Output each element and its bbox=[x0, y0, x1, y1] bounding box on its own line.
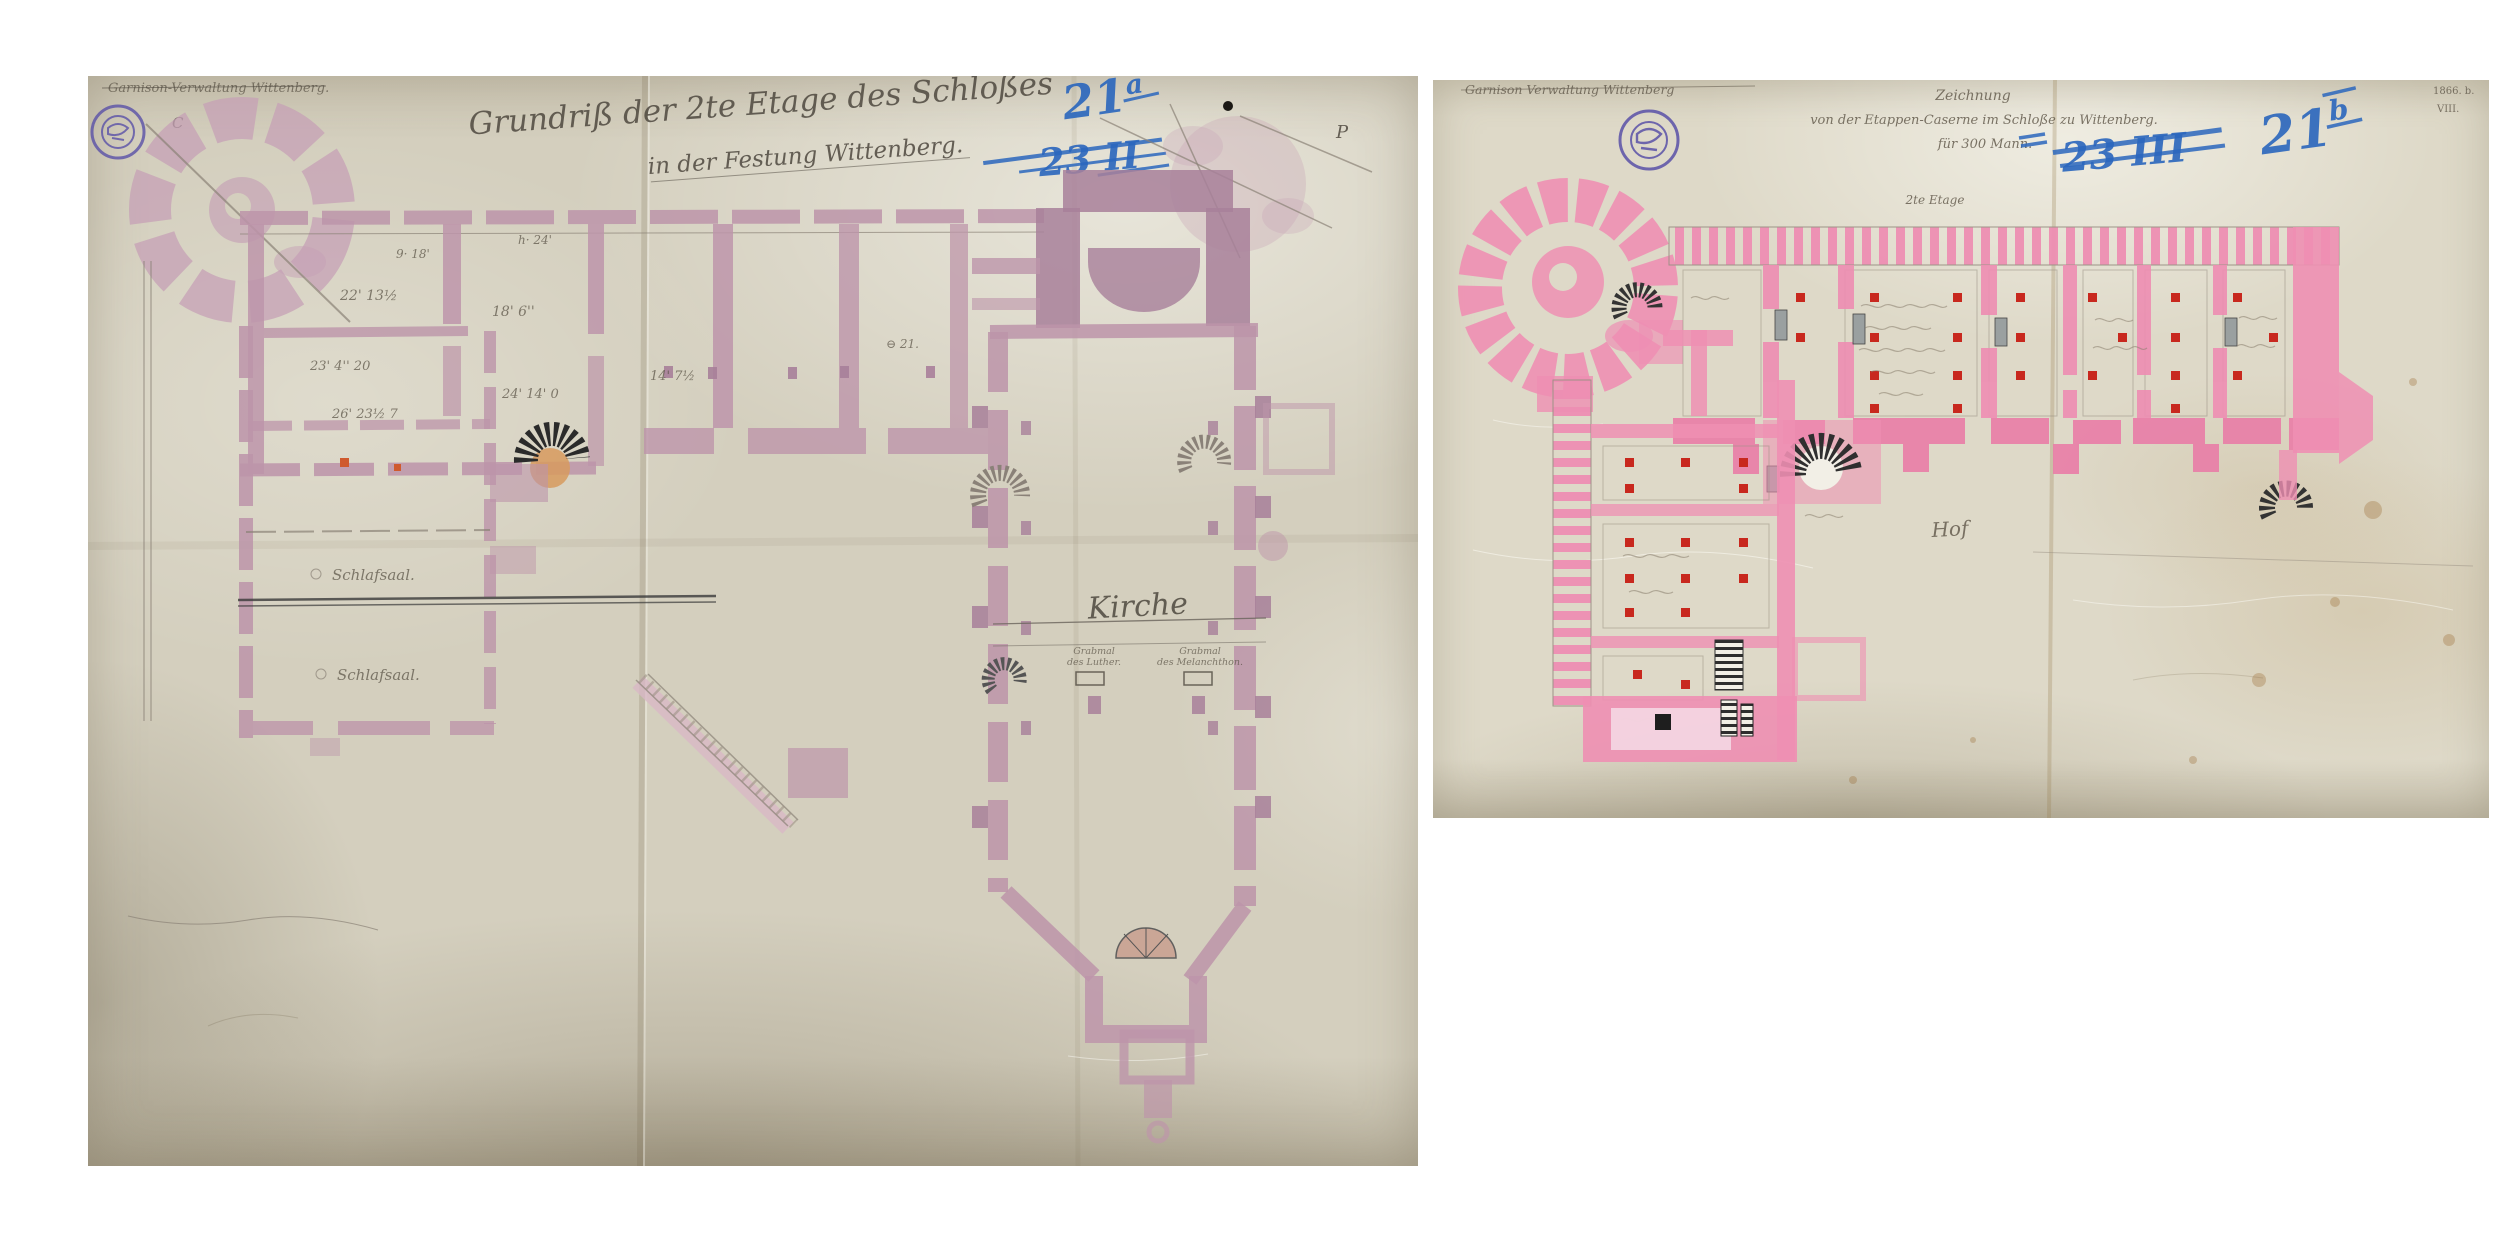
grabmal-luther-line1: Grabmal bbox=[1073, 646, 1115, 657]
left-blue-new-number: 21 bbox=[1058, 76, 1130, 130]
grabmal-melanchthon-line1: Grabmal bbox=[1179, 646, 1221, 657]
left-corner-note: Garnison-Verwaltung Wittenberg. bbox=[108, 81, 329, 96]
left-round-stamp-icon bbox=[92, 106, 144, 158]
grabmal-luther-line2: des Luther. bbox=[1067, 657, 1121, 668]
red-accent bbox=[394, 464, 401, 471]
ladder-fixture bbox=[1741, 704, 1753, 736]
right-blue-marks: 23 III 21 b bbox=[2019, 88, 2367, 183]
pillar-squares bbox=[664, 366, 935, 379]
svg-text:18' 6'': 18' 6'' bbox=[492, 304, 535, 320]
ink-blot bbox=[1223, 101, 1233, 111]
left-diagonal-hatched-wall bbox=[636, 674, 848, 828]
melanchthon-tomb-marker bbox=[1184, 672, 1212, 685]
left-corner-letter-p: P bbox=[1335, 122, 1349, 143]
left-plan-drawing: Garnison-Verwaltung Wittenberg. C P Grun… bbox=[88, 76, 1418, 1166]
right-blue-new-number: 21 bbox=[2254, 97, 2335, 168]
left-church: Kirche Grabmal des Luther. Grabmal des M… bbox=[972, 170, 1332, 1141]
luther-tomb-marker bbox=[1076, 672, 1104, 685]
schlafsaal-upper-label: Schlafsaal. bbox=[332, 566, 415, 584]
right-courtyard: Hof bbox=[1930, 516, 2473, 566]
schlafsaal-lower-label: Schlafsaal. bbox=[337, 666, 420, 684]
photo-collage: Garnison-Verwaltung Wittenberg. C P Grun… bbox=[0, 0, 2500, 1247]
tomb-labels: Grabmal des Luther. Grabmal des Melancht… bbox=[1067, 646, 1243, 668]
grabmal-melanchthon-line2: des Melanchthon. bbox=[1157, 657, 1243, 668]
right-title-line3: für 300 Mann. bbox=[1937, 137, 2032, 152]
straight-stair bbox=[1715, 640, 1743, 690]
svg-text:h· 24': h· 24' bbox=[518, 233, 552, 247]
ladder-fixture bbox=[1721, 700, 1737, 736]
red-accent bbox=[340, 458, 349, 467]
right-archive-mark: 1866. b. VIII. bbox=[2433, 86, 2474, 115]
svg-text:26' 23½ 7: 26' 23½ 7 bbox=[331, 407, 399, 422]
svg-text:⊖ 21.: ⊖ 21. bbox=[886, 337, 919, 351]
hof-label: Hof bbox=[1930, 516, 1973, 542]
black-fixture bbox=[1655, 714, 1671, 730]
left-title-line2: in der Festung Wittenberg. bbox=[647, 132, 964, 180]
north-battlement-wall bbox=[1669, 227, 2339, 265]
west-battlement-wall bbox=[1553, 380, 1591, 706]
svg-text:23' 4'' 20: 23' 4'' 20 bbox=[309, 359, 370, 374]
right-plan-drawing: Garnison Verwaltung Wittenberg 1866. b. … bbox=[1433, 80, 2489, 818]
room-marker bbox=[316, 669, 326, 679]
left-title: Grundriß der 2te Etage des Schloßes in d… bbox=[467, 76, 1057, 194]
room-marker bbox=[311, 569, 321, 579]
left-rosette-tower bbox=[126, 94, 358, 326]
svg-text:22' 13½: 22' 13½ bbox=[339, 288, 398, 304]
right-subtitle: 2te Etage bbox=[1905, 193, 1965, 207]
right-rosette-tower bbox=[1466, 186, 1683, 412]
red-billet-squares bbox=[1796, 293, 2278, 413]
right-round-stamp-icon bbox=[1620, 111, 1678, 169]
archive-mark-line1: 1866. b. bbox=[2433, 86, 2474, 97]
svg-text:24' 14' 0: 24' 14' 0 bbox=[501, 387, 559, 402]
left-title-line1: Grundriß der 2te Etage des Schloßes bbox=[467, 76, 1054, 142]
svg-text:9· 18': 9· 18' bbox=[396, 247, 430, 261]
archive-mark-line2: VIII. bbox=[2436, 104, 2459, 115]
right-west-wing bbox=[1553, 330, 1863, 762]
svg-text:14' 7½: 14' 7½ bbox=[650, 369, 695, 384]
right-floor-plan-photo: Garnison Verwaltung Wittenberg 1866. b. … bbox=[1433, 80, 2489, 818]
right-title-line2: von der Etappen-Caserne im Schloße zu Wi… bbox=[1810, 113, 2158, 128]
left-floor-plan-photo: Garnison-Verwaltung Wittenberg. C P Grun… bbox=[88, 76, 1418, 1166]
right-title-line1: Zeichnung bbox=[1934, 88, 2010, 104]
